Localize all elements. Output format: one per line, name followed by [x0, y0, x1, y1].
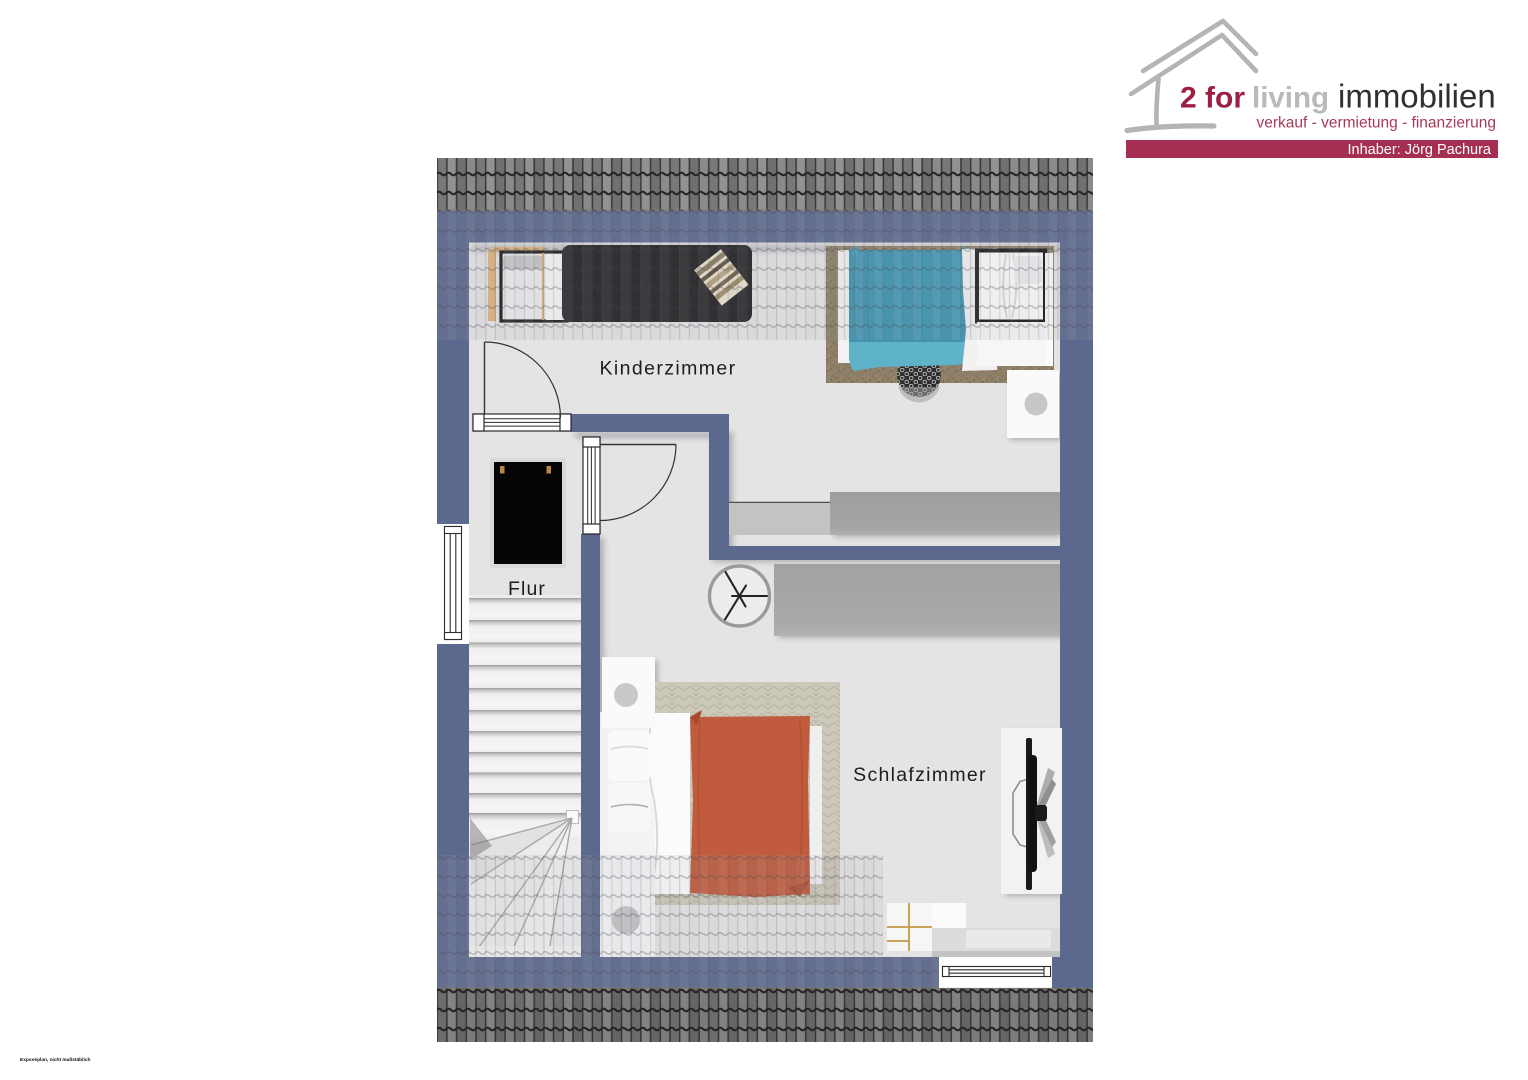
svg-text:Exposéplan, nicht maßstäblich: Exposéplan, nicht maßstäblich — [20, 1057, 90, 1063]
svg-text:Inhaber: Jörg Pachura: Inhaber: Jörg Pachura — [1348, 142, 1492, 158]
svg-text:Flur: Flur — [508, 578, 546, 600]
svg-text:living: living — [1252, 82, 1329, 115]
svg-text:verkauf - vermietung - finanzi: verkauf - vermietung - finanzierung — [1256, 115, 1496, 132]
svg-text:immobilien: immobilien — [1338, 78, 1496, 115]
svg-text:Kinderzimmer: Kinderzimmer — [599, 358, 736, 380]
svg-text:Schlafzimmer: Schlafzimmer — [853, 764, 987, 786]
svg-text:2 for: 2 for — [1180, 82, 1245, 115]
